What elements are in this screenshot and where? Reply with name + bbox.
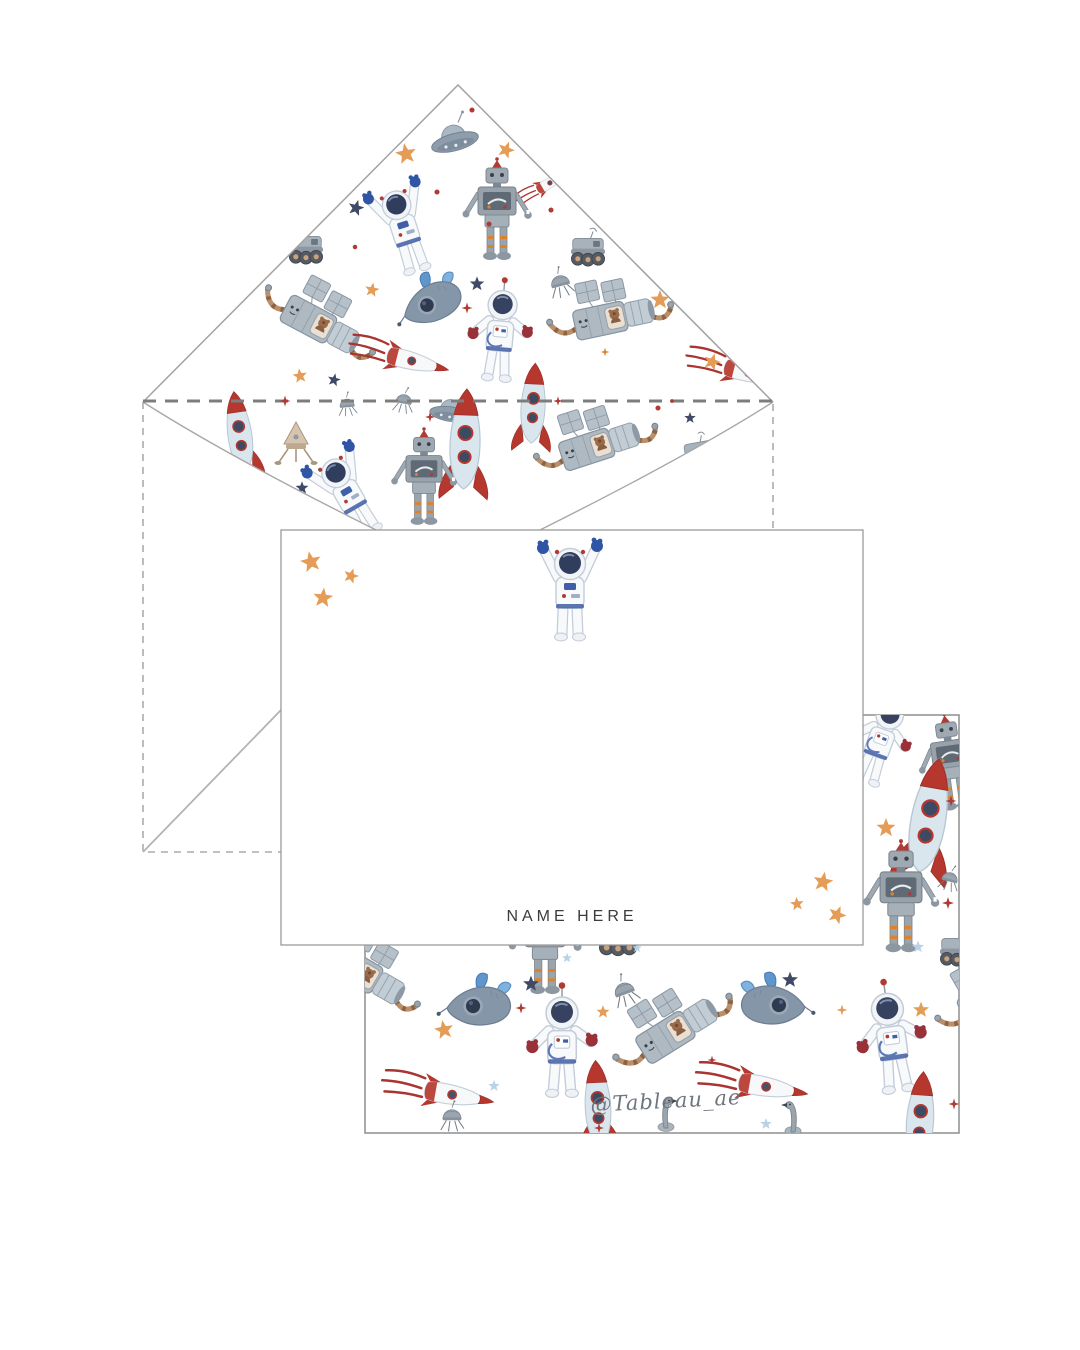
dot-motif bbox=[486, 221, 491, 226]
card-front: NAME HERE bbox=[281, 530, 863, 945]
name-placeholder: NAME HERE bbox=[506, 908, 637, 925]
dot-motif bbox=[548, 207, 553, 212]
dot-motif bbox=[670, 399, 674, 403]
scene: @Tableau_ae NAME HERE bbox=[0, 0, 1080, 1350]
dot-motif bbox=[434, 189, 439, 194]
dot-motif bbox=[353, 245, 357, 249]
dot-motif bbox=[655, 405, 660, 410]
dot-motif bbox=[469, 107, 474, 112]
mockup-canvas: @Tableau_ae NAME HERE bbox=[0, 0, 1080, 1350]
